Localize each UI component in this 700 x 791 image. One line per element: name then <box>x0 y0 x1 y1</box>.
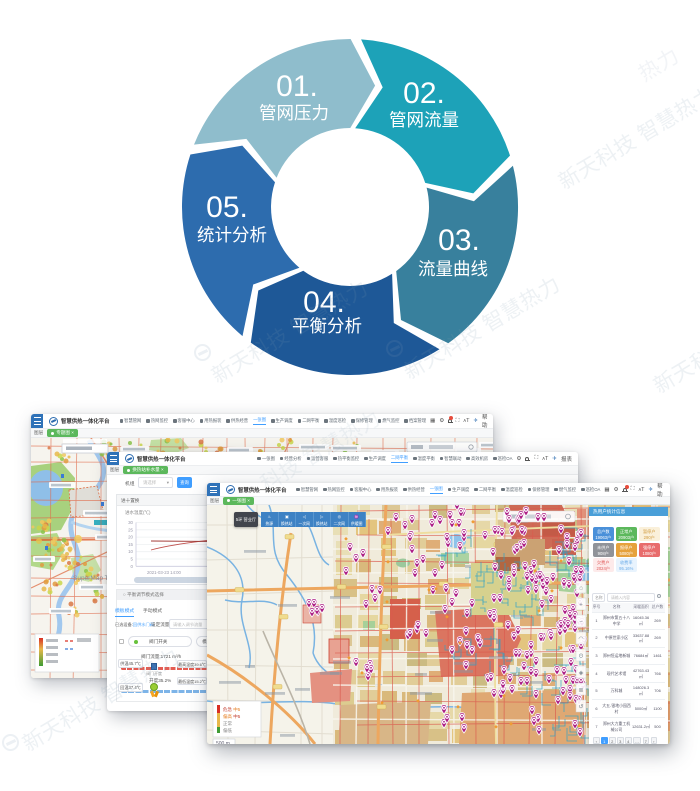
svg-text:−: − <box>579 620 583 626</box>
svg-text:管网流量: 管网流量 <box>389 110 459 130</box>
svg-text:危急 中5: 危急 中5 <box>223 706 241 713</box>
svg-text:◈: ◈ <box>579 671 584 677</box>
svg-text:2021-03-23 14:00: 2021-03-23 14:00 <box>147 570 182 575</box>
svg-text:15: 15 <box>128 542 133 547</box>
svg-text:⌂: ⌂ <box>579 586 583 592</box>
svg-text:偏低: 偏低 <box>223 727 232 734</box>
svg-text:0: 0 <box>131 564 134 569</box>
svg-text:30: 30 <box>128 520 133 525</box>
svg-text:03.: 03. <box>438 224 480 257</box>
svg-text:500 m: 500 m <box>216 741 230 744</box>
svg-text:+: + <box>579 603 583 609</box>
svg-text:01.: 01. <box>276 70 318 103</box>
svg-text:20: 20 <box>128 535 133 540</box>
svg-text:02.: 02. <box>403 77 445 110</box>
svg-text:25: 25 <box>128 527 133 532</box>
svg-text:统计分析: 统计分析 <box>197 225 267 245</box>
svg-text:05.: 05. <box>206 191 248 224</box>
svg-text:管网压力: 管网压力 <box>259 103 329 123</box>
svg-text:↺: ↺ <box>578 704 583 711</box>
svg-text:正常: 正常 <box>223 720 232 727</box>
svg-text:◠: ◠ <box>578 637 583 643</box>
svg-text:偏高 中5: 偏高 中5 <box>223 713 241 720</box>
svg-text:流量曲线: 流量曲线 <box>418 259 488 279</box>
svg-text:⊙: ⊙ <box>578 654 583 660</box>
svg-text:5: 5 <box>131 557 134 562</box>
svg-text:10: 10 <box>128 549 133 554</box>
